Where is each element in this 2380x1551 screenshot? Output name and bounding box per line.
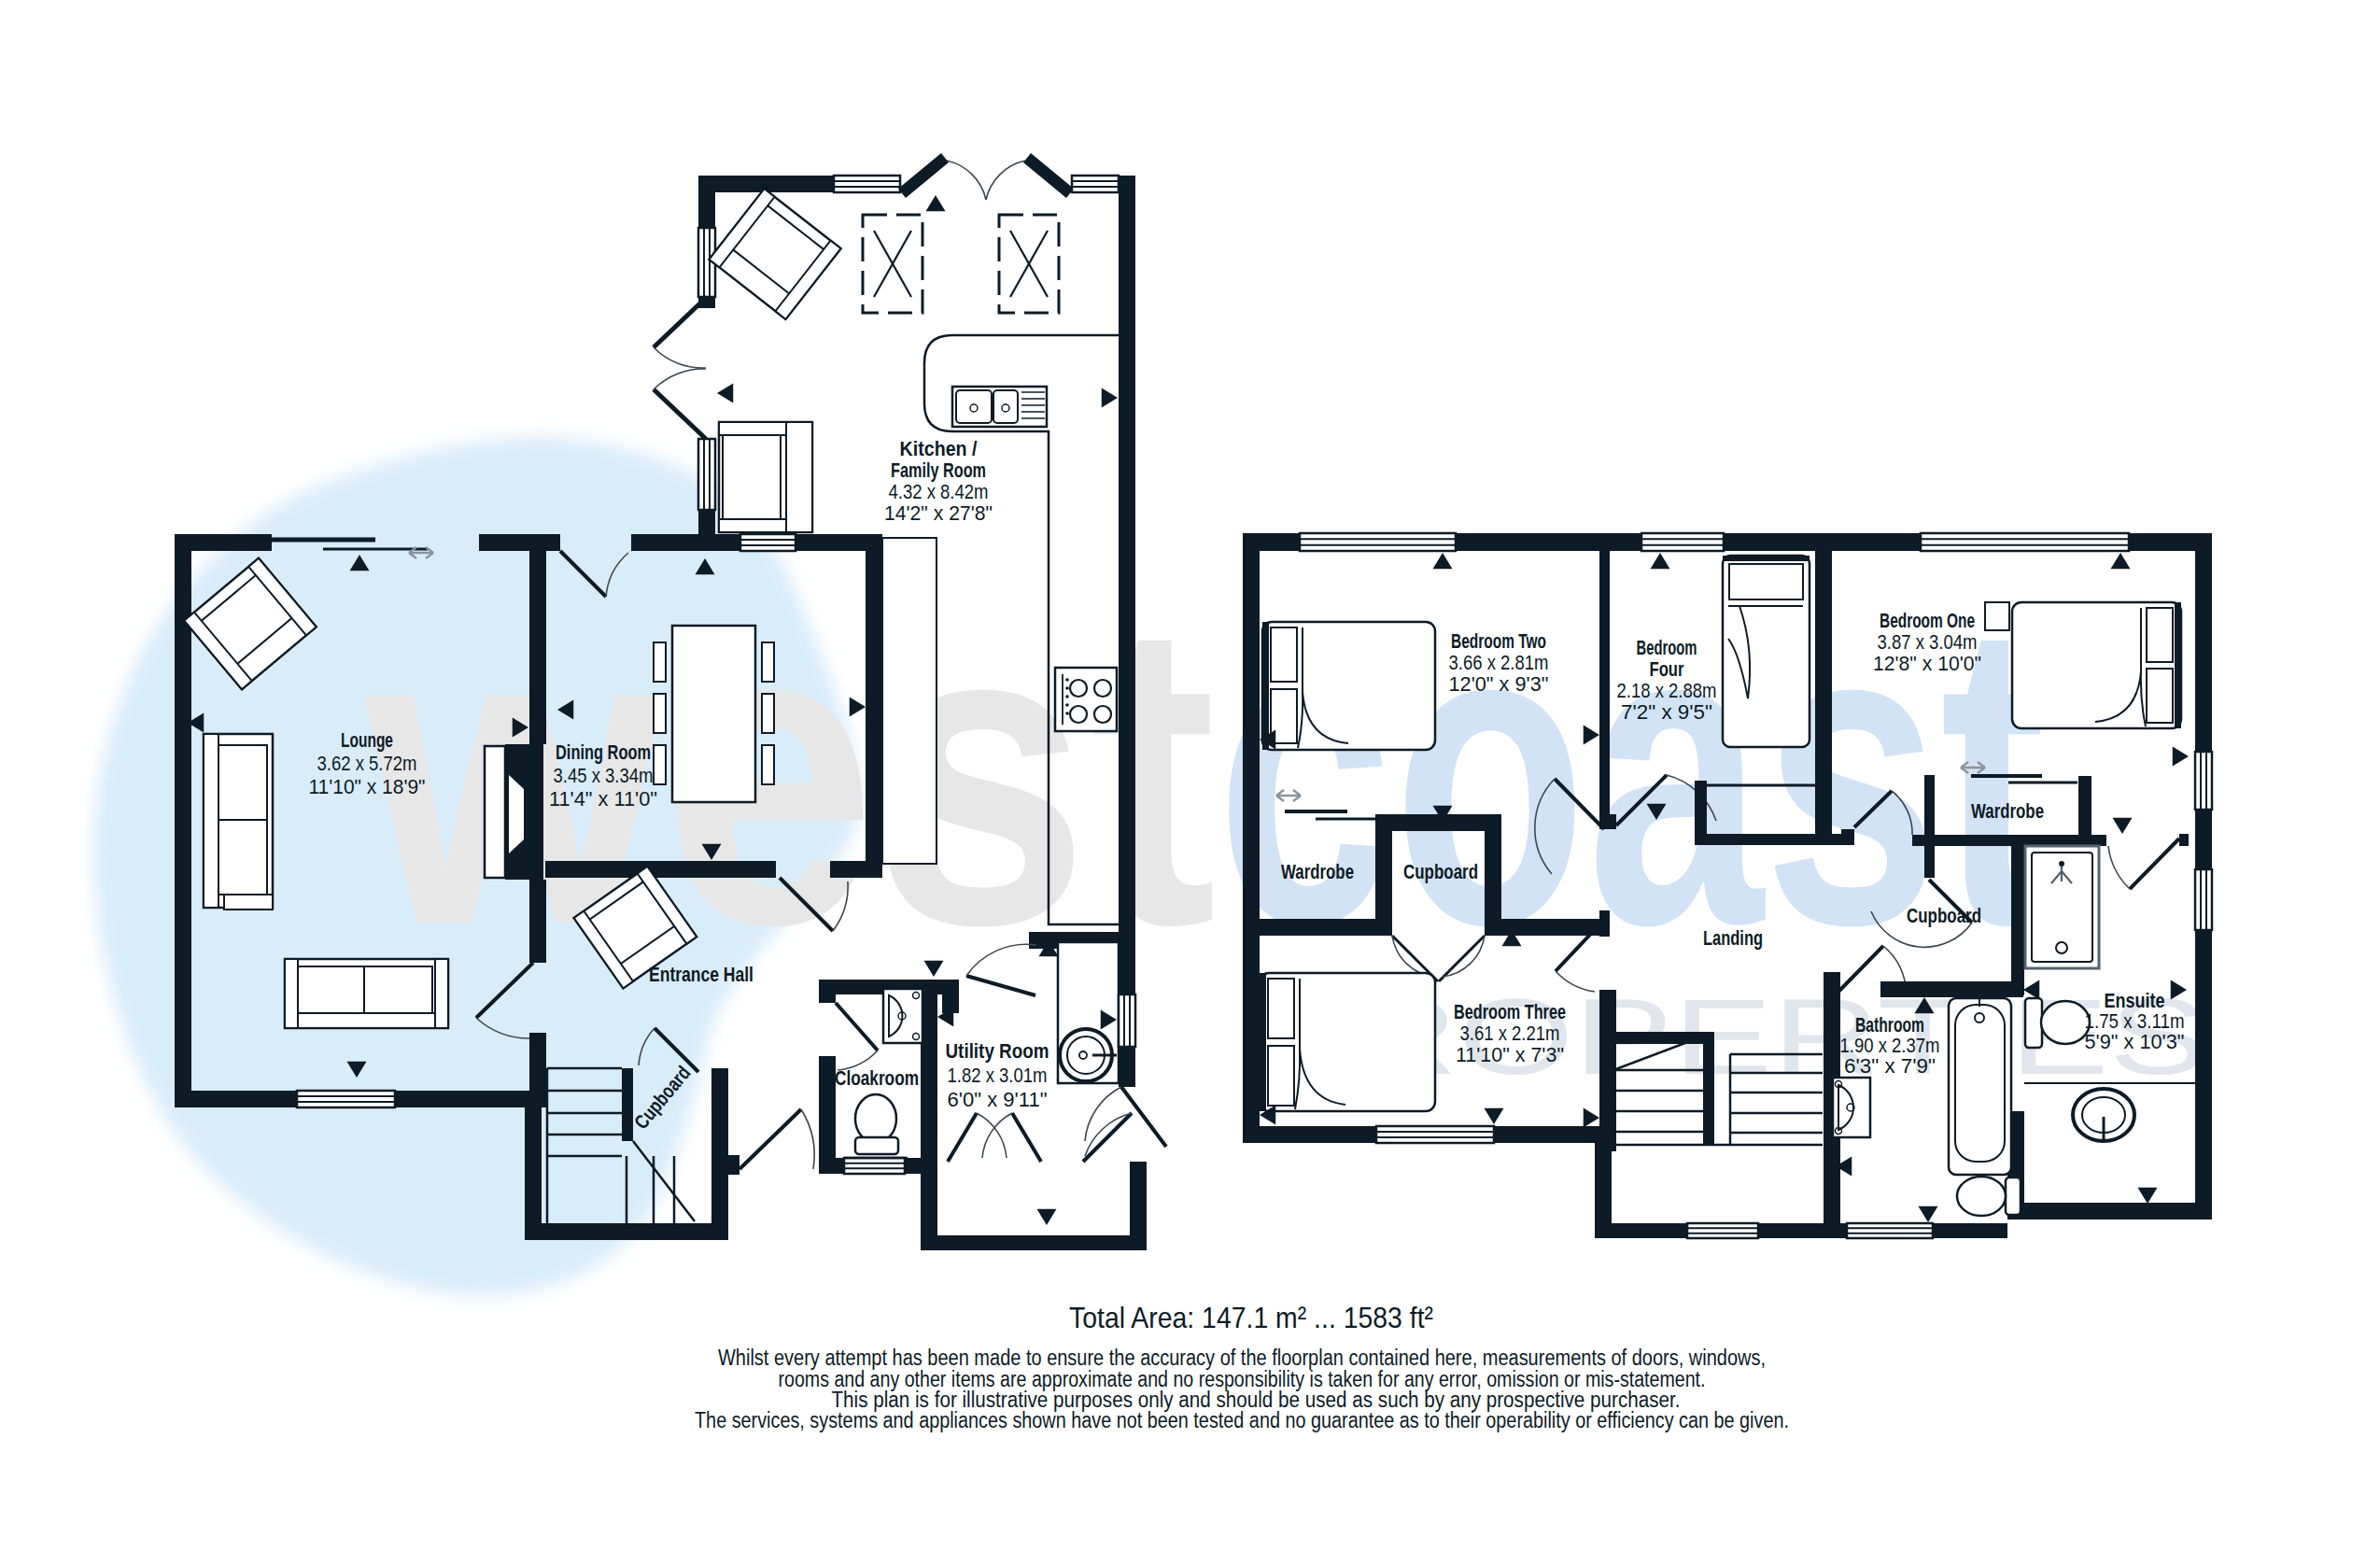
svg-text:Cupboard: Cupboard [1403, 861, 1478, 883]
svg-text:Bathroom: Bathroom [1855, 1014, 1924, 1036]
svg-text:1.90 x 2.37m: 1.90 x 2.37m [1840, 1035, 1940, 1057]
svg-text:Entrance Hall: Entrance Hall [649, 964, 753, 986]
svg-text:Kitchen /: Kitchen / [900, 438, 978, 460]
svg-text:3.45 x 3.34m: 3.45 x 3.34m [554, 765, 654, 787]
svg-text:3.61 x 2.21m: 3.61 x 2.21m [1460, 1022, 1560, 1045]
svg-text:3.62 x 5.72m: 3.62 x 5.72m [317, 753, 417, 775]
svg-text:11'10" x 7'3": 11'10" x 7'3" [1456, 1044, 1564, 1066]
svg-text:Utility Room: Utility Room [946, 1040, 1049, 1063]
svg-text:Family Room: Family Room [891, 459, 986, 482]
svg-text:Wardrobe: Wardrobe [1281, 861, 1354, 883]
svg-text:Ensuite: Ensuite [2105, 990, 2165, 1012]
svg-text:2.18 x 2.88m: 2.18 x 2.88m [1617, 680, 1717, 702]
svg-text:Total Area: 147.1 m² ... 1583: Total Area: 147.1 m² ... 1583 ft² [1069, 1301, 1433, 1334]
svg-text:coast: coast [1217, 531, 2046, 1014]
svg-text:Lounge: Lounge [341, 729, 393, 752]
svg-text:1.82 x 3.01m: 1.82 x 3.01m [948, 1065, 1048, 1087]
svg-text:Dining Room: Dining Room [556, 741, 651, 764]
svg-text:The services, systems and appl: The services, systems and appliances sho… [695, 1408, 1789, 1432]
svg-text:12'8" x 10'0": 12'8" x 10'0" [1873, 653, 1981, 675]
svg-text:Bedroom One: Bedroom One [1880, 610, 1975, 632]
svg-text:14'2" x 27'8": 14'2" x 27'8" [884, 502, 993, 525]
svg-text:7'2" x 9'5": 7'2" x 9'5" [1621, 701, 1712, 724]
svg-text:11'10" x 18'9": 11'10" x 18'9" [309, 776, 426, 798]
svg-text:4.32 x 8.42m: 4.32 x 8.42m [889, 481, 989, 503]
svg-text:Four: Four [1650, 658, 1684, 681]
svg-text:1.75 x 3.11m: 1.75 x 3.11m [2085, 1010, 2185, 1033]
svg-text:Cupboard: Cupboard [1907, 905, 1981, 927]
svg-text:Bedroom Three: Bedroom Three [1454, 1001, 1566, 1023]
svg-text:Cloakroom: Cloakroom [835, 1067, 919, 1090]
svg-text:Bedroom Two: Bedroom Two [1451, 630, 1546, 653]
svg-text:3.66 x 2.81m: 3.66 x 2.81m [1449, 652, 1549, 674]
svg-text:5'9" x 10'3": 5'9" x 10'3" [2085, 1031, 2185, 1053]
svg-text:Landing: Landing [1703, 927, 1763, 950]
svg-text:3.87 x 3.04m: 3.87 x 3.04m [1878, 631, 1978, 654]
svg-text:Wardrobe: Wardrobe [1971, 800, 2044, 823]
svg-text:11'4" x 11'0": 11'4" x 11'0" [549, 788, 657, 811]
svg-text:6'0" x 9'11": 6'0" x 9'11" [948, 1089, 1048, 1111]
svg-text:Bedroom: Bedroom [1637, 637, 1697, 659]
svg-text:6'3" x 7'9": 6'3" x 7'9" [1844, 1055, 1936, 1078]
svg-text:12'0" x 9'3": 12'0" x 9'3" [1449, 673, 1549, 696]
